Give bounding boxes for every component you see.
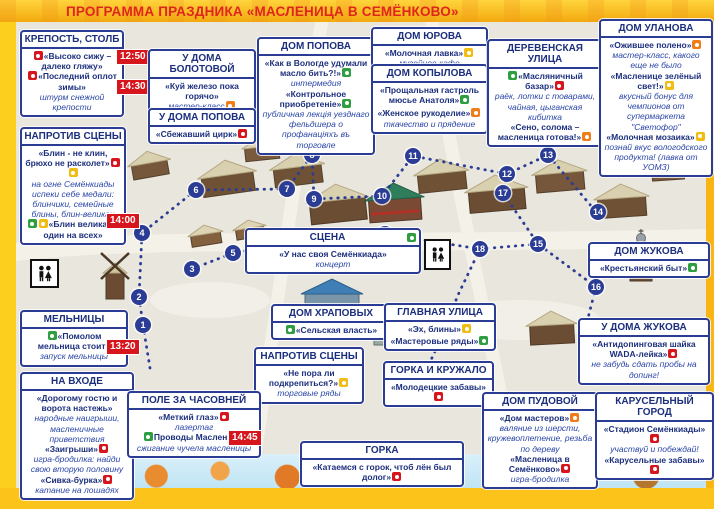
runner-icon — [650, 465, 659, 474]
event-title: «Масляничный базар» — [518, 71, 583, 91]
panel-dom-pudovoy: ДОМ ПУДОВОЙ «Дом мастеров» валяние из ше… — [482, 392, 598, 489]
panel-body: «Не пора ли подкрепиться?» торговые ряды — [256, 366, 362, 402]
event-line: «Контрольное приобретеніе» — [262, 89, 370, 109]
panel-header: ДОМ ЖУКОВА — [590, 244, 708, 261]
panel-header: ДЕРЕВЕНСКАЯ УЛИЦА — [489, 41, 601, 69]
panel-scena: СЦЕНА «У нас своя Семёнкиада» концерт — [245, 228, 421, 274]
craft-icon — [692, 40, 701, 49]
event-line: «Сено, солома – масленица готова!» — [492, 122, 598, 142]
event-line: «Не пора ли подкрепиться?» — [259, 368, 359, 388]
poster-title: ПРОГРАММА ПРАЗДНИКА «МАСЛЕНИЦА В СЕМЁНКО… — [66, 4, 459, 19]
panel-dom-hrapovyh: ДОМ ХРАПОВЫХ «Сельская власть» — [271, 304, 391, 340]
map-stop-10: 10 — [374, 188, 390, 204]
event-desc: не забудь сдать пробы на допинг! — [583, 359, 705, 379]
time-badge: 14:30 — [116, 79, 150, 95]
event-title: «Высоко сижу – далеко гляжу» — [41, 51, 111, 71]
event-desc: мастер-класс, какого еще не было — [604, 50, 708, 70]
event-desc: игра-бродилка: найди свою вторую половин… — [25, 454, 129, 474]
runner-icon — [28, 71, 37, 80]
craft-icon — [582, 132, 591, 141]
map-stop-18: 18 — [472, 241, 488, 257]
event-line: «Блин - не клин, брюхо не расколет» — [25, 148, 121, 179]
map-stop-1: 1 — [135, 317, 151, 333]
panel-header: ДОМ ЮРОВА — [373, 29, 486, 46]
event-desc: катание на лошадях — [25, 485, 129, 495]
event-line: «Мастеровые ряды» — [389, 336, 491, 346]
event-title: «Антидопинговая шайка WADA-лейка» — [592, 339, 695, 359]
event-line: «Сивка-бурка» — [25, 475, 129, 485]
runner-icon — [392, 472, 401, 481]
panel-krepost-header: КРЕПОСТЬ, СТОЛБ — [22, 32, 122, 49]
panel-body: «Дорогому гостю и ворота настежь» народн… — [22, 391, 132, 498]
panel-bolotova: У ДОМА БОЛОТОВОЙ «Куй железо пока горячо… — [148, 49, 256, 117]
event-title: «Мастеровые ряды» — [391, 336, 479, 346]
map-stop-13: 13 — [540, 147, 556, 163]
panel-header: У ДОМА ЖУКОВА — [580, 320, 708, 337]
event-desc: торговые ряды — [259, 388, 359, 398]
panel-body: «Как в Вологде удумали масло бить?!» инт… — [259, 56, 373, 153]
craft-icon — [471, 108, 480, 117]
map-stop-6: 6 — [188, 182, 204, 198]
panel-header: ДОМ ПУДОВОЙ — [484, 394, 596, 411]
event-title: «Сено, солома – масленица готова!» — [498, 122, 581, 142]
map-stop-11: 11 — [405, 148, 421, 164]
panel-dom-zhukova: ДОМ ЖУКОВА «Крестьянский быт» — [588, 242, 710, 278]
panel-krepost-body: «Высоко сижу – далеко гляжу» «Последний … — [22, 49, 122, 115]
panel-header: МЕЛЬНИЦЫ — [22, 312, 126, 329]
food-icon — [39, 219, 48, 228]
event-desc: ткачество и прядение — [376, 119, 483, 129]
event-line: «Меткий глаз» — [132, 412, 256, 422]
event-line: «Молочная лавка» — [376, 48, 483, 58]
left-frame-strip — [0, 22, 16, 488]
event-line: «Молочная мозаика» — [604, 132, 708, 142]
event-title: «Карусельные забавы» — [605, 455, 705, 465]
panel-pole-za-chasovney: ПОЛЕ ЗА ЧАСОВНЕЙ «Меткий глаз» лазертаг … — [127, 391, 261, 458]
event-desc: валяние из шерсти, кружевоплетение, резь… — [487, 423, 593, 454]
map-stop-15: 15 — [530, 236, 546, 252]
event-line: «Прощальная гастроль мюсье Анатоля» — [376, 85, 483, 105]
event-title: «Дом мастеров» — [500, 413, 569, 423]
panel-header: ГОРКА И КРУЖАЛО — [385, 363, 492, 380]
event-line: «Дом мастеров» — [487, 413, 593, 423]
event-title: «Контрольное приобретеніе» — [280, 89, 346, 109]
runner-icon — [668, 349, 677, 358]
wc-icon — [30, 259, 59, 288]
panel-body: «Крестьянский быт» — [590, 261, 708, 276]
poster: { "title": "ПРОГРАММА ПРАЗДНИКА «МАСЛЕНИ… — [0, 0, 714, 509]
time-badge: 13:20 — [106, 339, 140, 355]
panel-body: «Антидопинговая шайка WADA-лейка» не заб… — [580, 337, 708, 383]
event-line: «Эх, блины» — [389, 324, 491, 334]
show-icon — [688, 263, 697, 272]
event-line: «Дорогому гостю и ворота настежь» — [25, 393, 129, 413]
show-icon — [508, 71, 517, 80]
panel-header: ДОМ ХРАПОВЫХ — [273, 306, 389, 323]
time-badge: 14:45 — [228, 430, 262, 446]
panel-krepost: КРЕПОСТЬ, СТОЛБ «Высоко сижу – далеко гл… — [20, 30, 124, 117]
show-icon — [48, 331, 57, 340]
event-title: «Молочная мозаика» — [606, 132, 694, 142]
panel-glavnaya-ulica: ГЛАВНАЯ УЛИЦА «Эх, блины» «Мастеровые ря… — [384, 303, 496, 351]
show-icon — [460, 95, 469, 104]
show-icon — [144, 432, 153, 441]
panel-header: ГОРКА — [302, 443, 462, 460]
runner-icon — [238, 129, 247, 138]
panel-body: «Молодецкие забавы» — [385, 380, 492, 405]
show-icon — [407, 233, 416, 242]
map-stop-3: 3 — [184, 261, 200, 277]
panel-body: «Катаемся с горок, чтоб лён был долог» — [302, 460, 462, 485]
event-desc: народные наигрыши, масленичные приветств… — [25, 413, 129, 444]
runner-icon — [561, 464, 570, 473]
event-line: «Последний оплот зимы» — [25, 71, 119, 91]
map-stop-5: 5 — [225, 245, 241, 261]
panel-melnicy: МЕЛЬНИЦЫ «Помолом мельница стоит» запуск… — [20, 310, 128, 367]
event-line: «Женское рукоделие» — [376, 108, 483, 118]
panel-naprotiv-sceny-1: НАПРОТИВ СЦЕНЫ «Блин - не клин, брюхо не… — [20, 127, 126, 245]
panel-body: «Ожившее полено» мастер-класс, какого ещ… — [601, 38, 711, 175]
event-line: «Крестьянский быт» — [593, 263, 705, 273]
event-title: «Заигрыши» — [45, 444, 98, 454]
panel-body: «Дом мастеров» валяние из шерсти, кружев… — [484, 411, 596, 487]
runner-icon — [34, 51, 43, 60]
panel-body: «Сельская власть» — [273, 323, 389, 338]
event-desc: штурм снежной крепости — [25, 92, 119, 112]
event-line: «Катаемся с горок, чтоб лён был долог» — [305, 462, 459, 482]
panel-header: ДОМ УЛАНОВА — [601, 21, 711, 38]
food-icon — [69, 168, 78, 177]
runner-icon — [99, 444, 108, 453]
show-icon — [479, 336, 488, 345]
panel-na-vhode: НА ВХОДЕ «Дорогому гостю и ворота настеж… — [20, 372, 134, 500]
panel-header: КАРУСЕЛЬНЫЙ ГОРОД — [597, 394, 712, 422]
map-stop-7: 7 — [279, 181, 295, 197]
panel-u-doma-zhukova: У ДОМА ЖУКОВА «Антидопинговая шайка WADA… — [578, 318, 710, 385]
show-icon — [28, 219, 37, 228]
map-stop-12: 12 — [499, 166, 515, 182]
map-stop-16: 16 — [588, 279, 604, 295]
event-title: «Масленице зелёный свет!» — [611, 71, 702, 91]
event-line: «У нас своя Семёнкиада» — [250, 249, 416, 259]
event-title: «Стадион Семёнкиады» — [604, 424, 706, 434]
panel-gorka-i-kruzhalo: ГОРКА И КРУЖАЛО «Молодецкие забавы» — [383, 361, 494, 407]
event-line: «Высоко сижу – далеко гляжу» — [25, 51, 119, 71]
panel-dom-popova: ДОМ ПОПОВА «Как в Вологде удумали масло … — [257, 37, 375, 155]
food-icon — [464, 48, 473, 57]
event-title: «Меткий глаз» — [158, 412, 218, 422]
wc-icon — [424, 239, 451, 270]
food-icon — [462, 324, 471, 333]
show-icon — [286, 325, 295, 334]
runner-icon — [220, 412, 229, 421]
event-desc: познай вкус вологодского продукта! (лавк… — [604, 142, 708, 173]
event-desc: вкусный бонус для чемпионов от супермарк… — [604, 91, 708, 132]
event-desc: интермедия — [262, 78, 370, 88]
map-stop-2: 2 — [131, 289, 147, 305]
time-badge: 12:50 — [116, 49, 150, 65]
craft-icon — [570, 413, 579, 422]
event-title: «Сельская власть» — [296, 325, 377, 335]
panel-derevenskaya-ulica: ДЕРЕВЕНСКАЯ УЛИЦА «Масляничный базар» ра… — [487, 39, 603, 147]
panel-dom-kopylova: ДОМ КОПЫЛОВА «Прощальная гастроль мюсье … — [371, 64, 488, 134]
event-line: «Стадион Семёнкиады» — [600, 424, 709, 444]
event-title: «Как в Вологде удумали масло бить?!» — [265, 58, 367, 78]
map-stop-14: 14 — [590, 204, 606, 220]
event-line: «Масляничный базар» — [492, 71, 598, 91]
event-title: «Катаемся с горок, чтоб лён был долог» — [313, 462, 452, 482]
event-title: «Крестьянский быт» — [600, 263, 687, 273]
event-desc: игра-бродилка — [487, 474, 593, 484]
event-line: «Карусельные забавы» — [600, 455, 709, 475]
panel-body: «Стадион Семёнкиады» участвуй и побеждай… — [597, 422, 712, 478]
event-line: «Антидопинговая шайка WADA-лейка» — [583, 339, 705, 359]
event-title: «Не пора ли подкрепиться?» — [269, 368, 338, 388]
event-line: «Масленице зелёный свет!» — [604, 71, 708, 91]
event-desc: концерт — [250, 259, 416, 269]
panel-dom-ulanova: ДОМ УЛАНОВА «Ожившее полено» мастер-клас… — [599, 19, 713, 177]
event-line: «Сельская власть» — [276, 325, 386, 335]
panel-header: ДОМ КОПЫЛОВА — [373, 66, 486, 83]
event-line: «Молодецкие забавы» — [388, 382, 489, 402]
event-title: «Последний оплот зимы» — [38, 71, 117, 91]
panel-header: НАПРОТИВ СЦЕНЫ — [256, 349, 362, 366]
event-desc: раёк, лотки с товарами, чайная, цыганска… — [492, 91, 598, 122]
show-icon — [342, 99, 351, 108]
time-badge: 14:00 — [106, 213, 140, 229]
panel-body: «Масляничный базар» раёк, лотки с товара… — [489, 69, 601, 145]
event-title: «Блин - не клин, брюхо не расколет» — [25, 148, 109, 168]
food-icon — [696, 132, 705, 141]
panel-header: У ДОМА ПОПОВА — [150, 110, 254, 127]
event-line: «Куй железо пока горячо» — [153, 81, 251, 101]
map-stop-9: 9 — [306, 191, 322, 207]
food-icon — [665, 81, 674, 90]
panel-naprotiv-sceny-2: НАПРОТИВ СЦЕНЫ «Не пора ли подкрепиться?… — [254, 347, 364, 404]
event-line: «Масленица в Семёнково» — [487, 454, 593, 474]
event-line: «Как в Вологде удумали масло бить?!» — [262, 58, 370, 78]
panel-header: НАПРОТИВ СЦЕНЫ — [22, 129, 124, 146]
event-line: «Заигрыши» — [25, 444, 129, 454]
map-stop-17: 17 — [495, 185, 511, 201]
panel-u-doma-popova: У ДОМА ПОПОВА «Сбежавший цирк» — [148, 108, 256, 144]
panel-header: ГЛАВНАЯ УЛИЦА — [386, 305, 494, 322]
panel-body: «Сбежавший цирк» — [150, 127, 254, 142]
event-line: «Ожившее полено» — [604, 40, 708, 50]
event-line: «Сбежавший цирк» — [153, 129, 251, 139]
panel-body: «Прощальная гастроль мюсье Анатоля» «Жен… — [373, 83, 486, 132]
show-icon — [342, 68, 351, 77]
panel-header: У ДОМА БОЛОТОВОЙ — [150, 51, 254, 79]
runner-icon — [555, 81, 564, 90]
panel-header: СЦЕНА — [247, 230, 419, 247]
panel-karuselnyy-gorod: КАРУСЕЛЬНЫЙ ГОРОД «Стадион Семёнкиады» у… — [595, 392, 714, 480]
panel-header-text: СЦЕНА — [310, 232, 346, 243]
runner-icon — [650, 434, 659, 443]
runner-icon — [111, 158, 120, 167]
panel-body: «Эх, блины» «Мастеровые ряды» — [386, 322, 494, 349]
food-icon — [339, 378, 348, 387]
panel-header: ПОЛЕ ЗА ЧАСОВНЕЙ — [129, 393, 259, 410]
event-title: «Ожившее полено» — [610, 40, 692, 50]
event-title: «Женское рукоделие» — [378, 108, 471, 118]
panel-header: ДОМ ПОПОВА — [259, 39, 373, 56]
event-desc: публичная лекція уезднаго фельдшера о пр… — [262, 109, 370, 150]
runner-icon — [434, 392, 443, 401]
panel-body: «У нас своя Семёнкиада» концерт — [247, 247, 419, 272]
event-title: «Сивка-бурка» — [41, 475, 103, 485]
event-desc: участвуй и побеждай! — [600, 444, 709, 454]
event-title: «Молодецкие забавы» — [391, 382, 486, 392]
runner-icon — [103, 475, 112, 484]
panel-gorka: ГОРКА «Катаемся с горок, чтоб лён был до… — [300, 441, 464, 487]
event-title: «Сбежавший цирк» — [156, 129, 237, 139]
event-title: «Эх, блины» — [408, 324, 461, 334]
panel-header: НА ВХОДЕ — [22, 374, 132, 391]
event-title: «Молочная лавка» — [385, 48, 463, 58]
